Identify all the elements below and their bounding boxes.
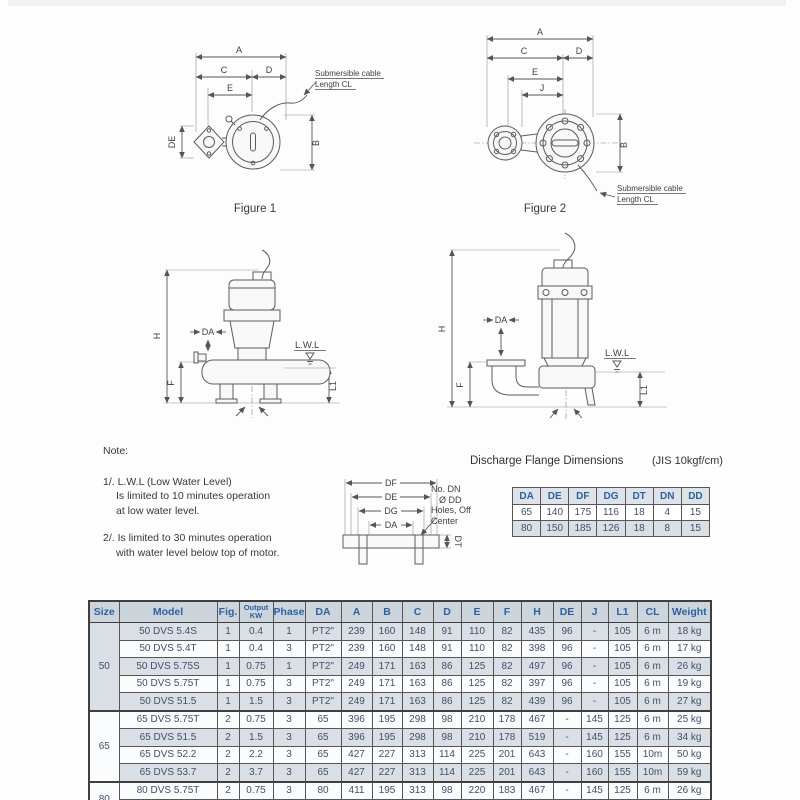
table-cell: 18 [625, 521, 653, 537]
dim-h-label: H [437, 326, 447, 333]
table-cell: 50 DVS 5.4S [119, 623, 217, 641]
table-cell: 26 kg [668, 782, 711, 800]
table-cell: 3 [273, 711, 305, 729]
table-cell: 65 [305, 764, 341, 782]
table-cell: 82 [493, 675, 521, 693]
table-cell: 0.75 [239, 782, 273, 800]
table-cell: 110 [461, 623, 493, 641]
table-cell: 125 [608, 782, 637, 800]
column-header: Size [89, 601, 119, 623]
table-cell: 140 [541, 505, 569, 521]
table-cell: 6 m [637, 693, 668, 711]
column-header: Output KW [239, 601, 273, 623]
table-cell: 175 [569, 505, 597, 521]
table-cell: 25 kg [668, 711, 711, 729]
table-cell: 3 [273, 693, 305, 711]
dim-dt-label: DT [453, 536, 463, 548]
table-cell: 91 [433, 623, 461, 641]
table-cell: 50 DVS 5.4T [119, 640, 217, 658]
table-cell: 15 [681, 505, 709, 521]
table-cell: 114 [433, 746, 461, 764]
catalog-page: A C D E DE B [0, 0, 800, 800]
column-header: H [521, 601, 553, 623]
dim-c-label: C [521, 46, 528, 56]
table-cell: 80 [513, 521, 541, 537]
side2-water-level: L.W.L [595, 348, 665, 372]
table-row: 8015018512618815 [513, 521, 710, 537]
dim-l1-label: L1 [328, 381, 338, 391]
table-cell: 298 [402, 729, 433, 747]
table-cell: 6 m [637, 729, 668, 747]
table-cell: - [581, 640, 608, 658]
table-cell: 65 DVS 51.5 [119, 729, 217, 747]
note-item-1: 1/. L.W.L (Low Water Level) Is limited t… [103, 475, 279, 519]
column-header: DA [305, 601, 341, 623]
table-cell: 6 m [637, 711, 668, 729]
table-row: 50 DVS 5.75S10.751PT2"249171163861258249… [89, 658, 711, 676]
table-row: 65 DVS 53.723.7365427227313114225201643-… [89, 764, 711, 782]
dim-d-label: D [576, 46, 583, 56]
cable-note-line1: Submersible cable [315, 69, 381, 78]
table-cell: 643 [521, 746, 553, 764]
table-cell: 6 m [637, 623, 668, 641]
dim-a-label: A [236, 45, 242, 55]
column-header: L1 [608, 601, 637, 623]
figure1-pump-outline [194, 115, 280, 169]
table-cell: 65 DVS 53.7 [119, 764, 217, 782]
table-cell: 1 [217, 675, 239, 693]
table-cell: 313 [402, 764, 433, 782]
dim-b-label: B [311, 140, 321, 146]
column-header: DA [513, 488, 541, 505]
table-cell: 313 [402, 782, 433, 800]
table-cell: 249 [341, 675, 372, 693]
table-cell: 396 [341, 711, 372, 729]
figure2-cable: Submersible cable Length CL [578, 165, 686, 205]
lwl-label: L.W.L [295, 340, 319, 351]
table-cell: 3 [273, 640, 305, 658]
table-cell: 1.5 [239, 693, 273, 711]
table-cell: 201 [493, 764, 521, 782]
table-cell: - [553, 764, 581, 782]
table-cell: 239 [341, 640, 372, 658]
dim-e-label: E [227, 83, 233, 93]
table-cell: 0.75 [239, 711, 273, 729]
table-cell: 125 [461, 658, 493, 676]
dim-f-label: F [455, 382, 465, 388]
table-cell: 0.4 [239, 640, 273, 658]
table-cell: 50 kg [668, 746, 711, 764]
table-cell: 86 [433, 675, 461, 693]
column-header: Fig. [217, 601, 239, 623]
table-cell: 227 [372, 746, 402, 764]
table-cell: 26 kg [668, 658, 711, 676]
flange-annotation: No. DN Ø DD Holes, Off Center [431, 484, 471, 526]
table-cell: - [581, 623, 608, 641]
table-cell: 145 [581, 729, 608, 747]
table-cell: 98 [433, 711, 461, 729]
table-cell: 249 [341, 658, 372, 676]
note-item-2: 2/. Is limited to 30 minutes operation w… [103, 531, 279, 560]
table-row: 65 DVS 52.222.2365427227313114225201643-… [89, 746, 711, 764]
pump-spec-table: SizeModelFig.Output KWPhaseDAABCDEFHDEJL… [88, 600, 712, 800]
column-header: DE [553, 601, 581, 623]
dim-j-label: J [540, 83, 545, 93]
table-cell: 0.4 [239, 623, 273, 641]
table-cell: 6 m [637, 640, 668, 658]
table-cell: 125 [461, 693, 493, 711]
table-cell: 65 [513, 505, 541, 521]
table-cell: 185 [569, 521, 597, 537]
table-cell: 171 [372, 675, 402, 693]
table-cell: 435 [521, 623, 553, 641]
table-cell: 65 [305, 711, 341, 729]
table-cell: 82 [493, 658, 521, 676]
table-cell: 65 [305, 729, 341, 747]
table-cell: 18 kg [668, 623, 711, 641]
table-cell: 396 [341, 729, 372, 747]
table-cell: 155 [608, 746, 637, 764]
table-cell: 0.75 [239, 675, 273, 693]
table-cell: 86 [433, 658, 461, 676]
table-cell: 145 [581, 711, 608, 729]
column-header: Phase [273, 601, 305, 623]
spec-header-row: SizeModelFig.Output KWPhaseDAABCDEFHDEJL… [89, 601, 711, 623]
column-header: E [461, 601, 493, 623]
flange-standard: (JIS 10kgf/cm) [652, 455, 723, 467]
dim-da-label: DA [385, 520, 398, 530]
side1-pump-outline [194, 250, 330, 418]
table-row: 5050 DVS 5.4S10.41PT2"239160148911108243… [89, 623, 711, 641]
dim-de-label: DE [385, 492, 398, 502]
page-top-edge [8, 0, 786, 6]
table-cell: PT2" [305, 675, 341, 693]
table-cell: 6 m [637, 658, 668, 676]
table-cell: - [553, 711, 581, 729]
table-cell: 227 [372, 764, 402, 782]
table-cell: 195 [372, 729, 402, 747]
table-cell: 4 [653, 505, 681, 521]
table-cell: 1 [273, 623, 305, 641]
column-header: Model [119, 601, 217, 623]
table-cell: 1 [217, 640, 239, 658]
table-cell: 96 [553, 675, 581, 693]
figure2-caption: Figure 2 [515, 203, 575, 215]
table-cell: 160 [581, 746, 608, 764]
table-row: 6565 DVS 5.75T20.75365396195298982101784… [89, 711, 711, 729]
table-cell: 6 m [637, 675, 668, 693]
table-cell: 105 [608, 640, 637, 658]
table-cell: - [553, 729, 581, 747]
dim-h-label: H [152, 333, 162, 340]
table-cell: - [553, 746, 581, 764]
table-cell: 3 [273, 729, 305, 747]
table-cell: 239 [341, 623, 372, 641]
table-cell: 225 [461, 764, 493, 782]
size-cell: 50 [89, 623, 119, 711]
table-cell: 8 [653, 521, 681, 537]
table-cell: 467 [521, 711, 553, 729]
table-cell: 91 [433, 640, 461, 658]
table-cell: 313 [402, 746, 433, 764]
table-cell: 178 [493, 711, 521, 729]
table-cell: 125 [608, 711, 637, 729]
table-cell: 2.2 [239, 746, 273, 764]
table-cell: 82 [493, 693, 521, 711]
table-cell: 3 [273, 746, 305, 764]
figure1-caption: Figure 1 [225, 203, 285, 215]
table-cell: 201 [493, 746, 521, 764]
dim-e-label: E [532, 67, 538, 77]
table-cell: 96 [553, 693, 581, 711]
column-header: DN [653, 488, 681, 505]
table-cell: 225 [461, 746, 493, 764]
table-cell: 10m [637, 764, 668, 782]
table-cell: 155 [608, 764, 637, 782]
table-cell: 6 m [637, 782, 668, 800]
table-cell: 105 [608, 658, 637, 676]
table-cell: 96 [553, 640, 581, 658]
column-header: J [581, 601, 608, 623]
size-cell: 65 [89, 711, 119, 782]
table-cell: 1 [217, 693, 239, 711]
table-cell: 105 [608, 623, 637, 641]
table-cell: 65 [305, 746, 341, 764]
table-cell: 1 [273, 658, 305, 676]
table-cell: 178 [493, 729, 521, 747]
table-cell: 148 [402, 623, 433, 641]
table-cell: 163 [402, 675, 433, 693]
side2-pump-outline [487, 233, 595, 420]
table-cell: 50 DVS 5.75T [119, 675, 217, 693]
column-header: B [372, 601, 402, 623]
table-cell: 427 [341, 764, 372, 782]
table-cell: - [581, 693, 608, 711]
spec-table-wrap: SizeModelFig.Output KWPhaseDAABCDEFHDEJL… [88, 600, 714, 800]
table-cell: 1.5 [239, 729, 273, 747]
column-header: F [493, 601, 521, 623]
table-cell: 2 [217, 729, 239, 747]
lwl-label: L.W.L [605, 348, 629, 359]
cable-note-line1: Submersible cable [617, 184, 683, 193]
size-cell: 80 [89, 782, 119, 800]
table-cell: 15 [681, 521, 709, 537]
table-cell: 17 kg [668, 640, 711, 658]
table-cell: 96 [553, 658, 581, 676]
table-cell: 163 [402, 658, 433, 676]
side-view1-diagram: H F DA L1 [150, 246, 390, 422]
table-cell: - [553, 782, 581, 800]
table-cell: - [581, 675, 608, 693]
column-header: DG [597, 488, 625, 505]
table-cell: 160 [581, 764, 608, 782]
table-cell: 19 kg [668, 675, 711, 693]
table-cell: - [581, 658, 608, 676]
dim-f-label: F [166, 380, 176, 386]
table-cell: 439 [521, 693, 553, 711]
table-cell: 86 [433, 693, 461, 711]
cable-note-line2: Length CL [315, 80, 352, 89]
column-header: D [433, 601, 461, 623]
table-row: 65 DVS 51.521.536539619529898210178519-1… [89, 729, 711, 747]
table-cell: 27 kg [668, 693, 711, 711]
table-cell: 195 [372, 782, 402, 800]
column-header: DF [569, 488, 597, 505]
side-view2-diagram: H F DA L1 [435, 230, 705, 422]
table-cell: 98 [433, 729, 461, 747]
table-cell: 1 [217, 658, 239, 676]
table-cell: 59 kg [668, 764, 711, 782]
table-cell: 82 [493, 640, 521, 658]
column-header: C [402, 601, 433, 623]
table-cell: 98 [433, 782, 461, 800]
table-row: 8080 DVS 5.75T20.75380411195313982201834… [89, 782, 711, 800]
table-cell: 80 [305, 782, 341, 800]
table-cell: 125 [461, 675, 493, 693]
table-cell: 195 [372, 711, 402, 729]
dim-c-label: C [221, 65, 228, 75]
table-cell: 65 DVS 52.2 [119, 746, 217, 764]
table-cell: PT2" [305, 658, 341, 676]
table-cell: 497 [521, 658, 553, 676]
table-cell: 467 [521, 782, 553, 800]
flange-header-row: DADEDFDGDTDNDD [513, 488, 710, 505]
table-cell: 163 [402, 693, 433, 711]
table-cell: 3.7 [239, 764, 273, 782]
column-header: Weight [668, 601, 711, 623]
table-cell: PT2" [305, 623, 341, 641]
table-cell: 2 [217, 764, 239, 782]
notes-title: Note: [103, 444, 279, 459]
column-header: CL [637, 601, 668, 623]
table-cell: 3 [273, 782, 305, 800]
table-cell: 2 [217, 711, 239, 729]
table-cell: 160 [372, 623, 402, 641]
table-row: 50 DVS 51.511.53PT2"24917116386125824399… [89, 693, 711, 711]
table-cell: 411 [341, 782, 372, 800]
table-row: 6514017511618415 [513, 505, 710, 521]
table-cell: 171 [372, 693, 402, 711]
table-cell: 50 DVS 5.75S [119, 658, 217, 676]
table-cell: 210 [461, 729, 493, 747]
flange-section-title: Discharge Flange Dimensions [470, 455, 623, 467]
cable-note-line2: Length CL [617, 195, 654, 204]
table-cell: 18 [625, 505, 653, 521]
table-cell: 116 [597, 505, 625, 521]
table-cell: 427 [341, 746, 372, 764]
table-cell: 150 [541, 521, 569, 537]
dim-l1-label: L1 [639, 385, 649, 395]
table-cell: 3 [273, 675, 305, 693]
table-cell: 183 [493, 782, 521, 800]
table-cell: 10m [637, 746, 668, 764]
table-cell: 2 [217, 746, 239, 764]
dim-de-label: DE [167, 136, 177, 149]
table-cell: 34 kg [668, 729, 711, 747]
table-cell: 105 [608, 675, 637, 693]
dim-df-label: DF [385, 478, 397, 488]
flange-dimensions-table: DADEDFDGDTDNDD 6514017511618415801501851… [512, 487, 710, 537]
dim-d-label: D [266, 65, 273, 75]
column-header: DT [625, 488, 653, 505]
table-cell: 148 [402, 640, 433, 658]
table-row: 50 DVS 5.4T10.43PT2"23916014891110823989… [89, 640, 711, 658]
table-cell: 643 [521, 764, 553, 782]
table-cell: 126 [597, 521, 625, 537]
column-header: A [341, 601, 372, 623]
table-cell: 105 [608, 693, 637, 711]
table-cell: 96 [553, 623, 581, 641]
notes-block: Note: 1/. L.W.L (Low Water Level) Is lim… [103, 444, 279, 573]
table-cell: 82 [493, 623, 521, 641]
table-cell: 160 [372, 640, 402, 658]
figure1-diagram: A C D E DE B [140, 40, 400, 202]
table-cell: 1 [217, 623, 239, 641]
table-cell: 80 DVS 5.75T [119, 782, 217, 800]
table-cell: 65 DVS 5.75T [119, 711, 217, 729]
table-cell: 220 [461, 782, 493, 800]
table-cell: 50 DVS 51.5 [119, 693, 217, 711]
table-cell: 110 [461, 640, 493, 658]
table-cell: PT2" [305, 693, 341, 711]
table-cell: 3 [273, 764, 305, 782]
dim-da-label: DA [202, 327, 215, 337]
column-header: DD [681, 488, 709, 505]
dim-da-label: DA [495, 315, 508, 325]
table-cell: 114 [433, 764, 461, 782]
table-cell: 249 [341, 693, 372, 711]
dim-dg-label: DG [384, 506, 398, 516]
table-cell: PT2" [305, 640, 341, 658]
table-cell: 397 [521, 675, 553, 693]
table-cell: 145 [581, 782, 608, 800]
dim-a-label: A [537, 27, 543, 37]
table-row: 50 DVS 5.75T10.753PT2"249171163861258239… [89, 675, 711, 693]
table-cell: 125 [608, 729, 637, 747]
table-cell: 2 [217, 782, 239, 800]
table-cell: 210 [461, 711, 493, 729]
figure2-diagram: A C D E J B [460, 25, 730, 230]
table-cell: 519 [521, 729, 553, 747]
table-cell: 171 [372, 658, 402, 676]
table-cell: 398 [521, 640, 553, 658]
figure2-pump-outline [474, 109, 622, 179]
table-cell: 298 [402, 711, 433, 729]
table-cell: 0.75 [239, 658, 273, 676]
column-header: DE [541, 488, 569, 505]
